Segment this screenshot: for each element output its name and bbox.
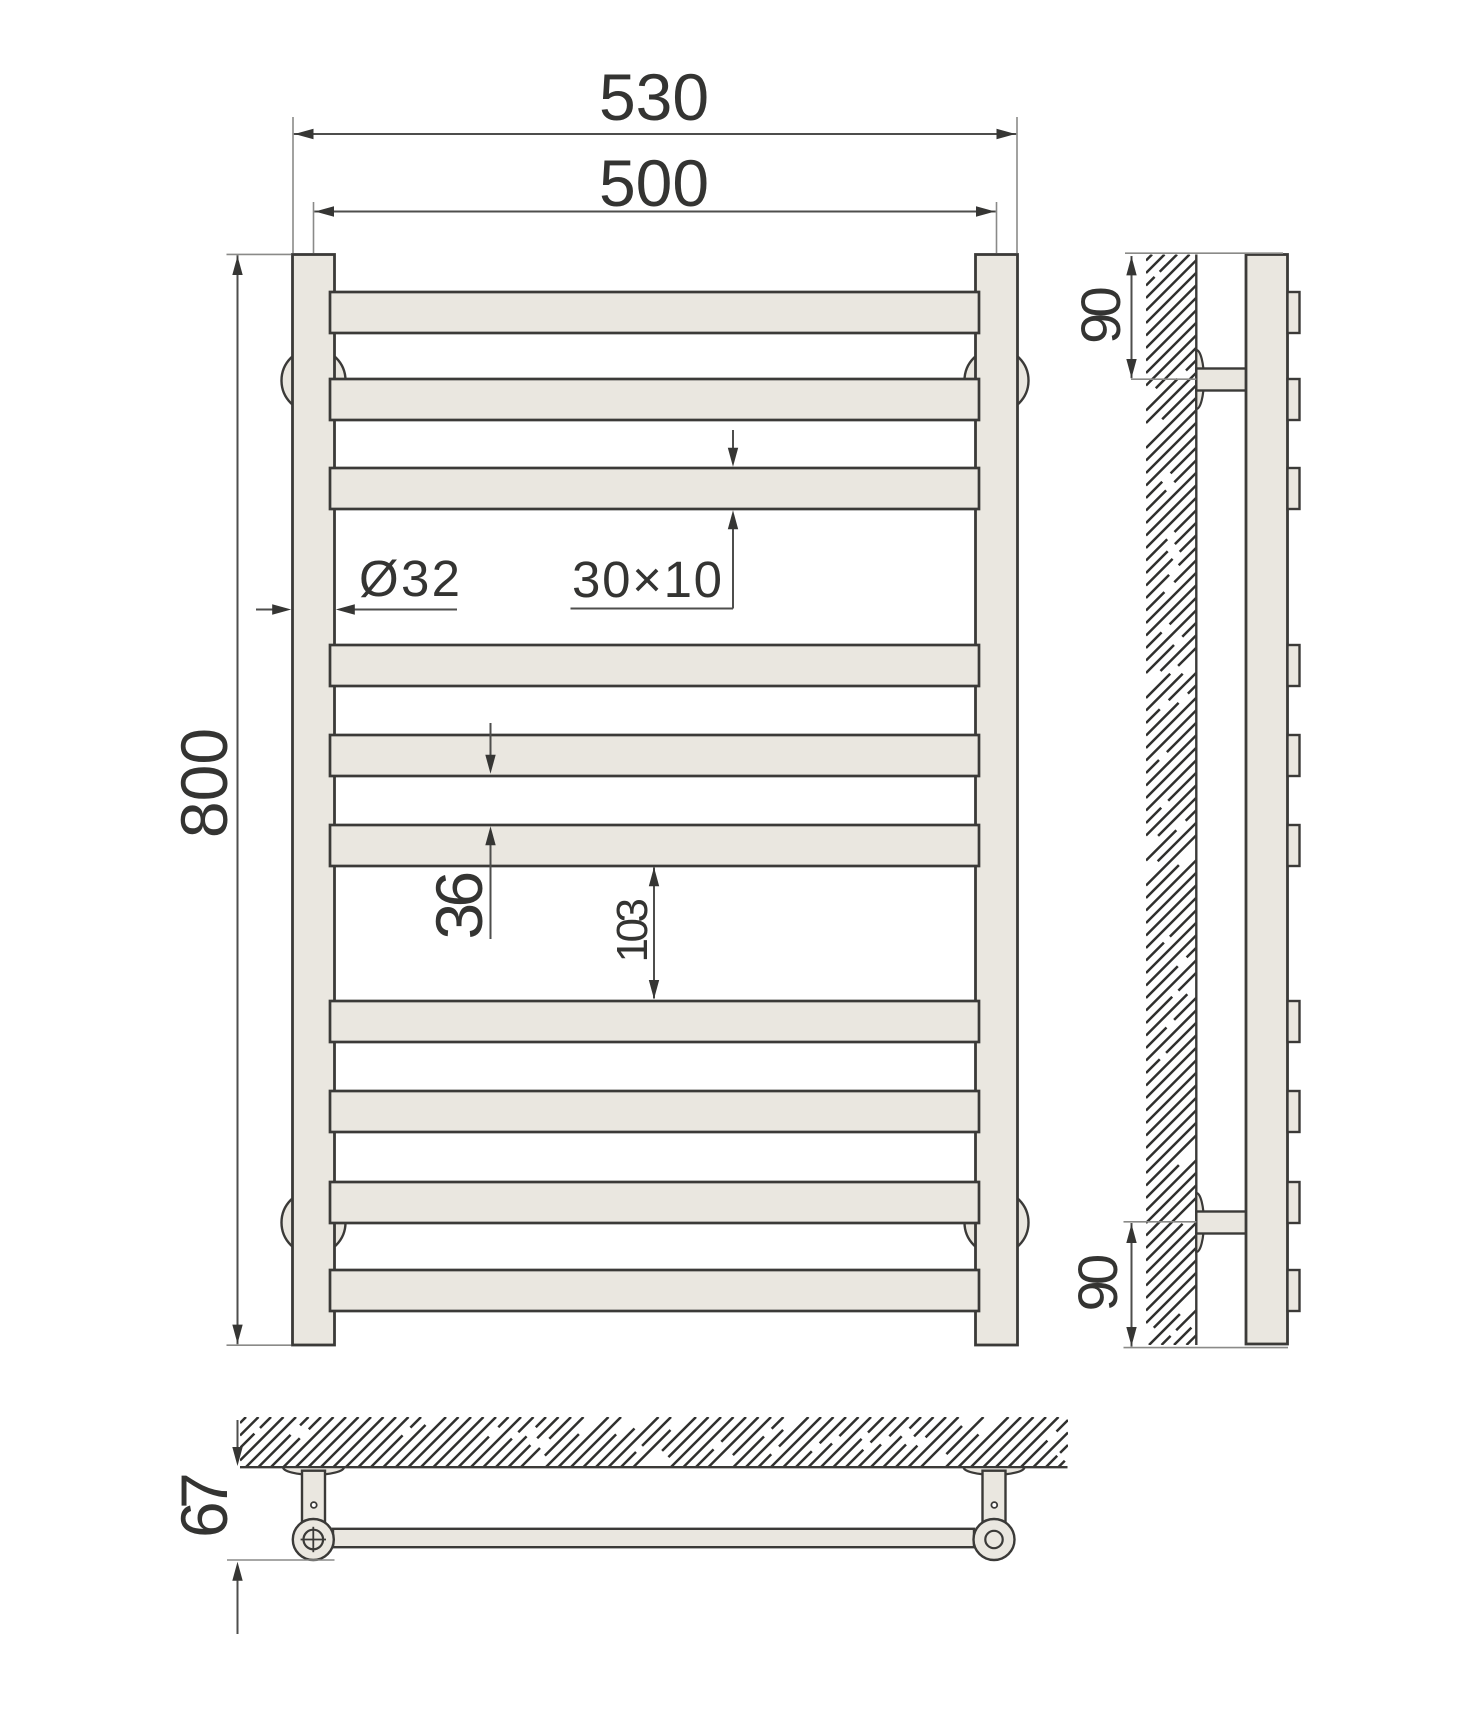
svg-text:Ø32: Ø32: [359, 550, 462, 607]
svg-text:103: 103: [608, 900, 657, 963]
svg-text:500: 500: [599, 146, 709, 220]
svg-text:30×10: 30×10: [572, 551, 724, 608]
svg-text:36: 36: [422, 874, 496, 940]
svg-text:90: 90: [1069, 289, 1132, 344]
svg-text:800: 800: [167, 728, 241, 838]
svg-text:530: 530: [599, 60, 709, 134]
svg-text:67: 67: [167, 1475, 241, 1538]
svg-text:90: 90: [1066, 1256, 1129, 1311]
